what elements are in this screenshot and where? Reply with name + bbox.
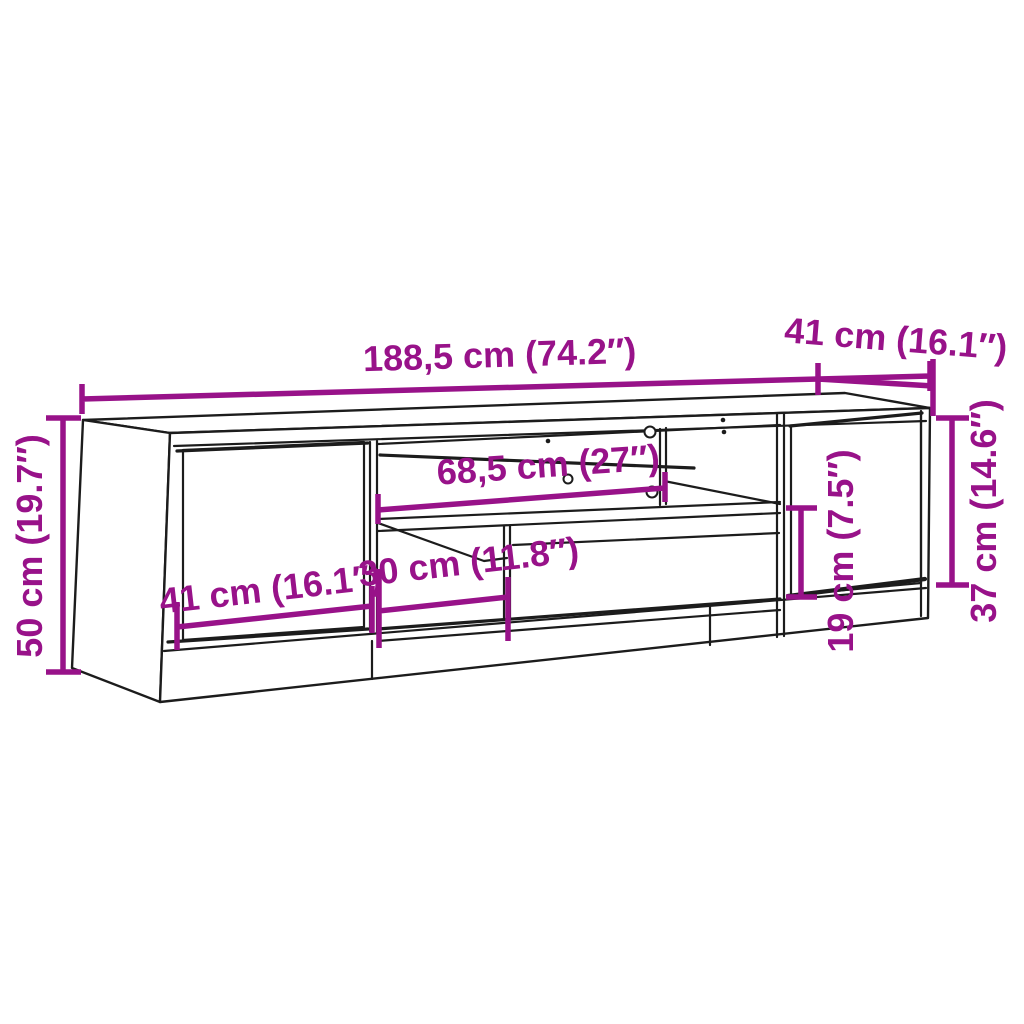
cabinet-left-side-panel: [72, 420, 170, 702]
right-door-height-label: 37 cm (14.6″): [963, 399, 1004, 622]
screw-dot-icon: [722, 430, 727, 435]
overall-depth-label: 41 cm (16.1″): [783, 309, 1009, 367]
dimension-diagram-canvas: 188,5 cm (74.2″) 41 cm (16.1″) 50 cm (19…: [0, 0, 1024, 1024]
screw-dot-icon: [721, 418, 726, 423]
furniture-dimension-diagram: 188,5 cm (74.2″) 41 cm (16.1″) 50 cm (19…: [0, 0, 1024, 1024]
overall-height-label: 50 cm (19.7″): [9, 434, 50, 657]
dimension-overall-height: 50 cm (19.7″): [9, 418, 81, 672]
lower-compartment-height-label: 19 cm (7.5″): [820, 449, 861, 652]
overall-width-label: 188,5 cm (74.2″): [362, 330, 637, 380]
dimension-right-door-height: 37 cm (14.6″): [936, 399, 1004, 622]
screw-dot-icon: [546, 439, 551, 444]
